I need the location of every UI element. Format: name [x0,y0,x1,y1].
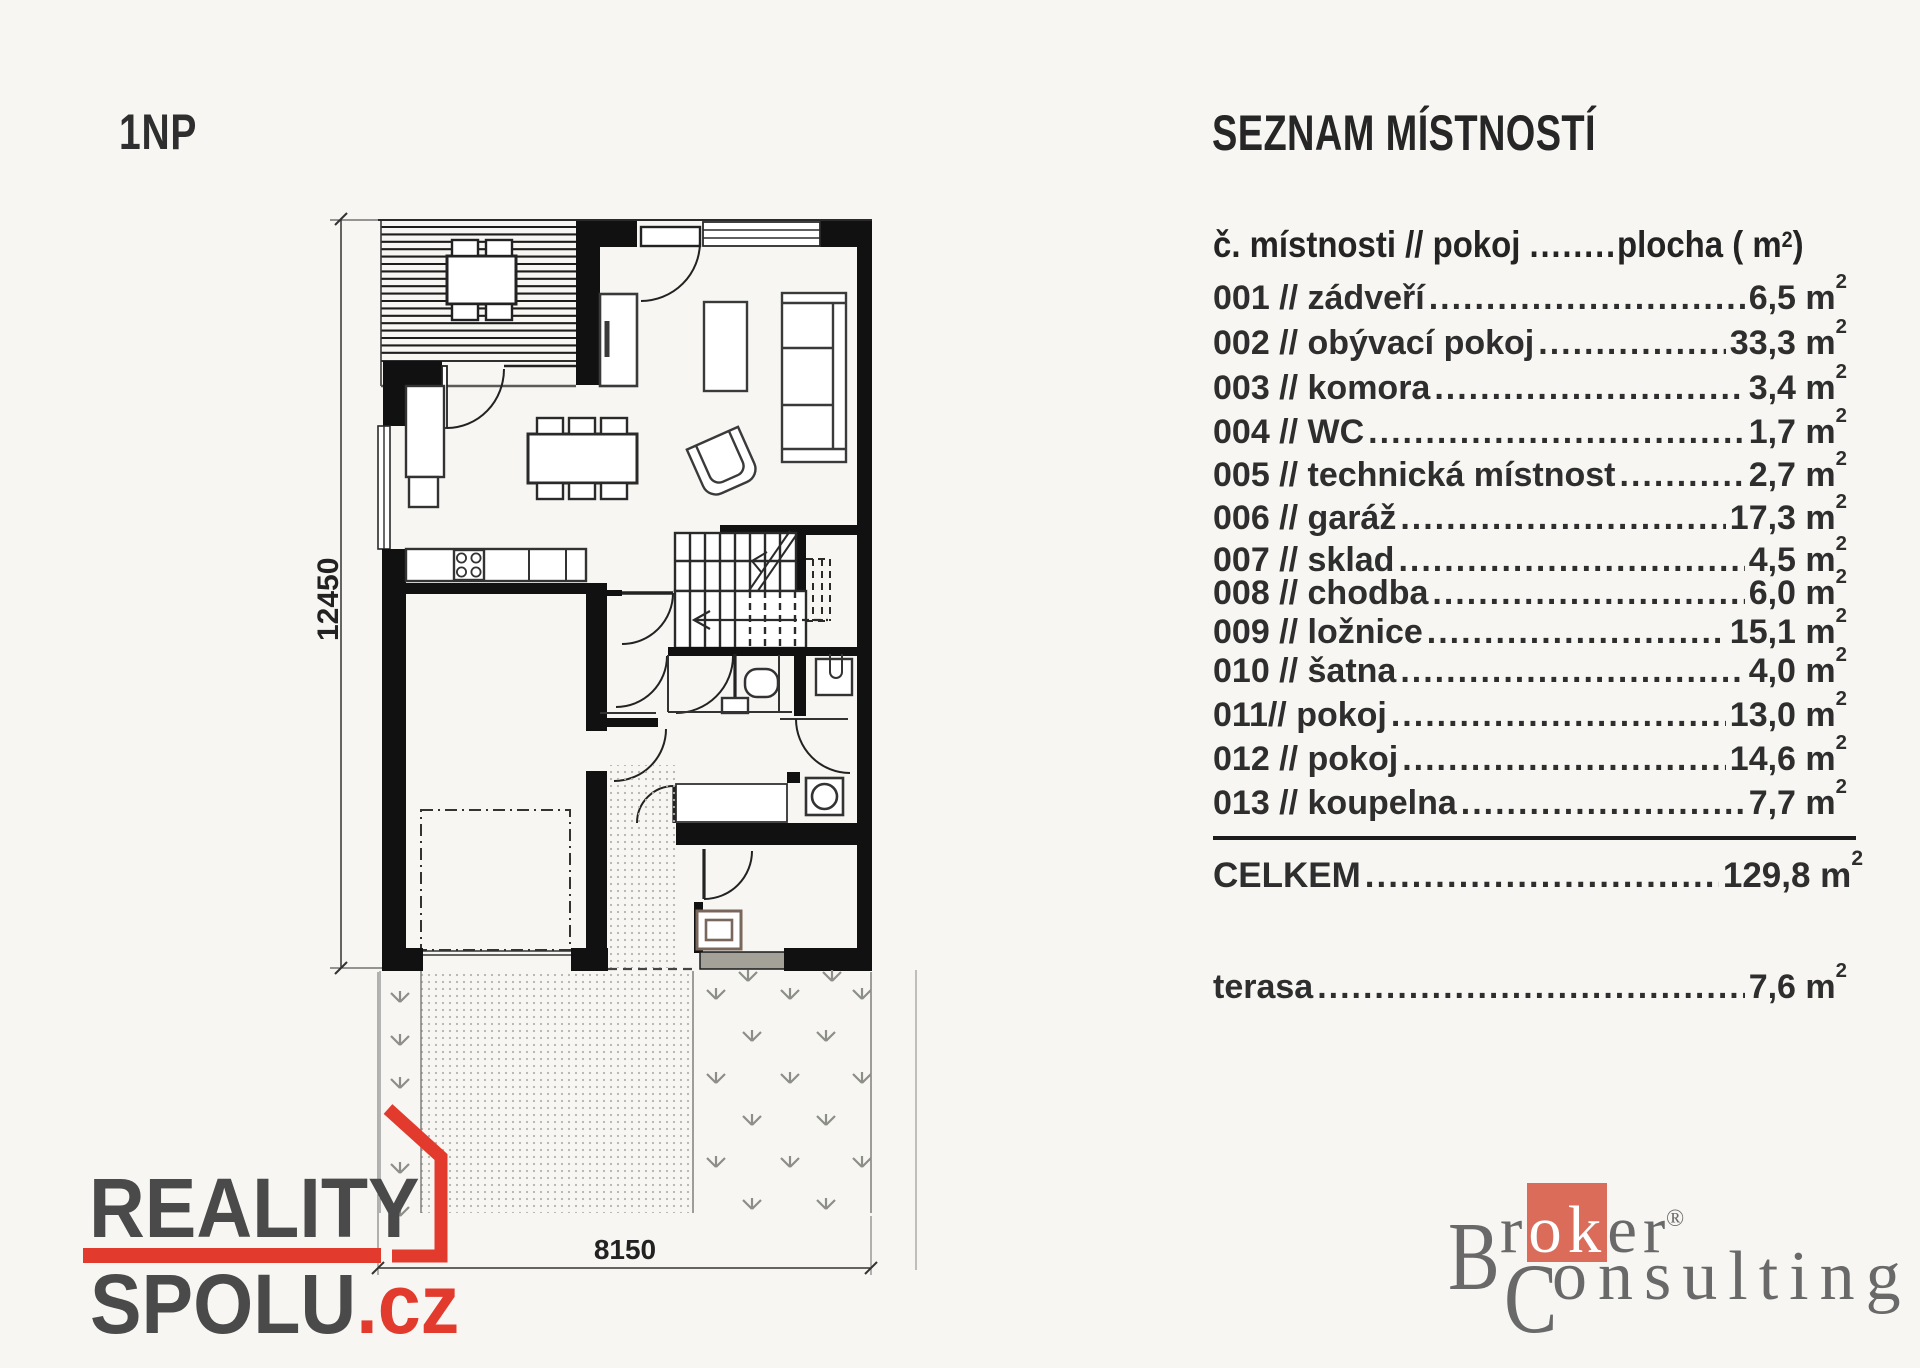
svg-text:8150: 8150 [594,1234,656,1265]
svg-text:12450: 12450 [312,558,345,641]
